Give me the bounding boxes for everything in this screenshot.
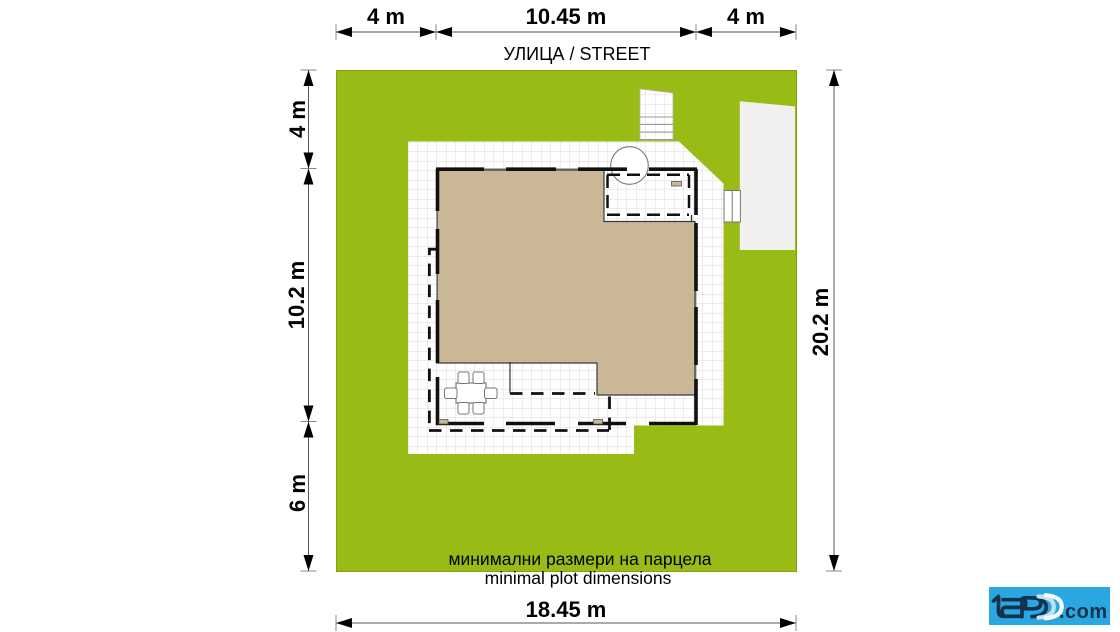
- svg-text:4 m: 4 m: [285, 100, 310, 138]
- svg-text:18.45 m: 18.45 m: [526, 597, 607, 622]
- svg-text:minimal plot dimensions: minimal plot dimensions: [485, 568, 672, 588]
- svg-text:6 m: 6 m: [285, 474, 310, 512]
- svg-text:4 m: 4 m: [367, 4, 405, 29]
- svg-text:10.2 m: 10.2 m: [284, 261, 309, 330]
- svg-text:.com: .com: [1059, 601, 1108, 623]
- svg-text:10.45 m: 10.45 m: [526, 4, 607, 29]
- svg-text:20.2 m: 20.2 m: [808, 288, 833, 357]
- svg-text:4 m: 4 m: [727, 4, 765, 29]
- svg-text:УЛИЦА / STREET: УЛИЦА / STREET: [504, 44, 651, 64]
- svg-text:минимални размери на парцела: минимални размери на парцела: [448, 549, 711, 569]
